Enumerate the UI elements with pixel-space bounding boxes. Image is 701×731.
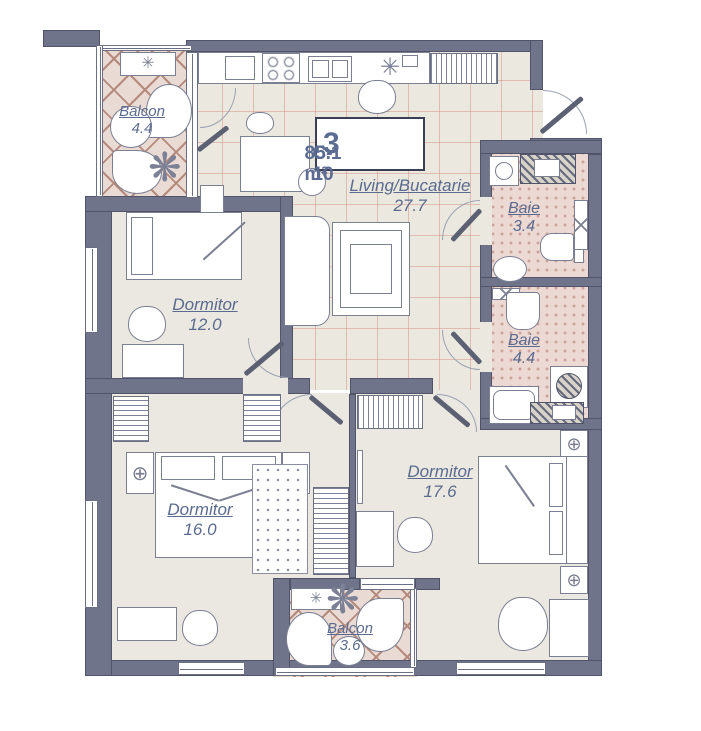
wall-hall-divider — [349, 394, 356, 578]
label-baie-2-area: 4.4 — [513, 350, 535, 367]
label-dormitor-1-area: 12.0 — [188, 315, 221, 334]
dormitor-3-pillow-top — [549, 463, 563, 507]
label-baie-2-name: Baie — [508, 332, 540, 349]
wall-top-main — [186, 40, 543, 52]
dormitor-3-nightstand-bottom: ⊕ — [560, 566, 588, 594]
label-living: Living/Bucatarie 27.7 — [330, 176, 490, 216]
baie-1-washer-drum — [495, 162, 513, 180]
dormitor-3-dresser — [549, 599, 589, 657]
dormitor-2-nightstand-left: ⊕ — [126, 452, 154, 494]
baie-1-sink — [493, 256, 527, 282]
label-baie-1: Baie 3.4 — [494, 200, 554, 236]
balcon-top-rail-top — [98, 45, 192, 51]
label-living-name: Living/Bucatarie — [350, 176, 471, 195]
hall-closet-left — [113, 396, 149, 442]
wall-balcon-bottom-top-r — [415, 578, 440, 590]
hall-closet-right — [243, 394, 281, 442]
window-dormitor-3-bottom — [456, 662, 546, 675]
dining-chair-top — [246, 112, 274, 134]
wall-top-stub — [43, 30, 100, 47]
dormitor-1-desk — [122, 344, 184, 378]
dormitor-3-chair — [397, 517, 433, 553]
kitchen-hood — [225, 56, 255, 80]
label-dormitor-1: Dormitor 12.0 — [150, 295, 260, 335]
dormitor-2-desk — [117, 607, 177, 641]
living-sofa — [284, 216, 330, 326]
doorway-baie-2 — [480, 322, 492, 372]
wall-entry-column — [530, 40, 543, 90]
kitchen-sink-basin-right — [332, 60, 348, 78]
kitchen-sink-basin-left — [312, 60, 329, 78]
dormitor-2-pillow-left — [161, 456, 215, 480]
window-dormitor-1 — [85, 247, 98, 333]
kitchen-appliance — [200, 185, 224, 213]
baie-2-tub-inner — [493, 390, 535, 420]
doorway-dormitor-1 — [243, 378, 288, 394]
baie-1-toilet — [540, 233, 574, 261]
dormitor-2-rug — [252, 464, 308, 574]
kitchen-chair — [358, 80, 396, 114]
dormitor-1-pillow — [131, 217, 153, 275]
label-baie-1-area: 3.4 — [513, 218, 535, 235]
baie-2-washer-drum — [556, 373, 582, 399]
dormitor-3-pillow-bottom — [549, 511, 563, 555]
label-balcon-bottom-area: 3.6 — [340, 637, 361, 654]
dormitor-3-wardrobe — [357, 395, 423, 429]
balcon-top-vent: ✳ — [120, 52, 176, 76]
dormitor-3-nightstand-top: ⊕ — [560, 430, 588, 458]
label-baie-2: Baie 4.4 — [494, 332, 554, 368]
dormitor-3-desk — [356, 511, 394, 567]
window-dormitor-2-left — [85, 500, 98, 608]
balcon-bottom-rail-right — [410, 588, 417, 668]
wall-dormitor1-top — [85, 196, 293, 212]
dormitor-2-chair — [182, 610, 218, 646]
balcon-bottom-rail — [275, 667, 415, 676]
baie-2-counter-basin — [552, 405, 576, 420]
label-dormitor-2-name: Dormitor — [167, 500, 232, 519]
label-balcon-top: Balcon 4.4 — [92, 103, 192, 137]
baie-1-counter-basin — [534, 159, 560, 177]
label-dormitor-3-name: Dormitor — [407, 462, 472, 481]
wall-bath-top — [480, 140, 602, 154]
dormitor-3-mirror — [357, 450, 363, 504]
wall-right-main — [588, 154, 602, 676]
balcon-top-plant-icon: ❋ — [148, 148, 182, 188]
kitchen-stove — [262, 53, 300, 83]
balcon-bottom-plant-icon: ❋ — [326, 580, 360, 620]
living-coffee-table — [350, 244, 392, 294]
window-dormitor-2-bottom — [178, 662, 245, 675]
label-dormitor-3-area: 17.6 — [423, 482, 456, 501]
kitchen-fan-icon: ✳ — [380, 56, 400, 80]
label-baie-1-name: Baie — [508, 200, 540, 217]
baie-2-toilet — [506, 292, 540, 330]
dormitor-2-closet — [313, 487, 349, 575]
kitchen-small-box — [402, 55, 418, 67]
label-dormitor-1-name: Dormitor — [172, 295, 237, 314]
wall-living-south — [350, 378, 433, 394]
dormitor-3-headboard — [566, 456, 588, 564]
label-balcon-top-area: 4.4 — [132, 120, 153, 137]
balcon-bottom-door — [360, 578, 415, 590]
label-balcon-top-name: Balcon — [119, 103, 165, 120]
label-dormitor-3: Dormitor 17.6 — [385, 462, 495, 502]
entry-wardrobe — [430, 53, 498, 84]
label-dormitor-2: Dormitor 16.0 — [145, 500, 255, 540]
label-dormitor-2-area: 16.0 — [183, 520, 216, 539]
floor-plan: ✳ 3 C-10 85.1 m² ⊕ ⊕ ⊕ ⊕ — [0, 0, 701, 731]
label-balcon-bottom-name: Balcon — [327, 620, 373, 637]
dormitor-3-armchair — [498, 597, 548, 651]
label-living-area: 27.7 — [393, 196, 426, 215]
label-balcon-bottom: Balcon 3.6 — [310, 620, 390, 654]
baie-1-shelf — [574, 200, 588, 250]
unit-title-box: 3 C-10 85.1 m² — [315, 117, 425, 171]
